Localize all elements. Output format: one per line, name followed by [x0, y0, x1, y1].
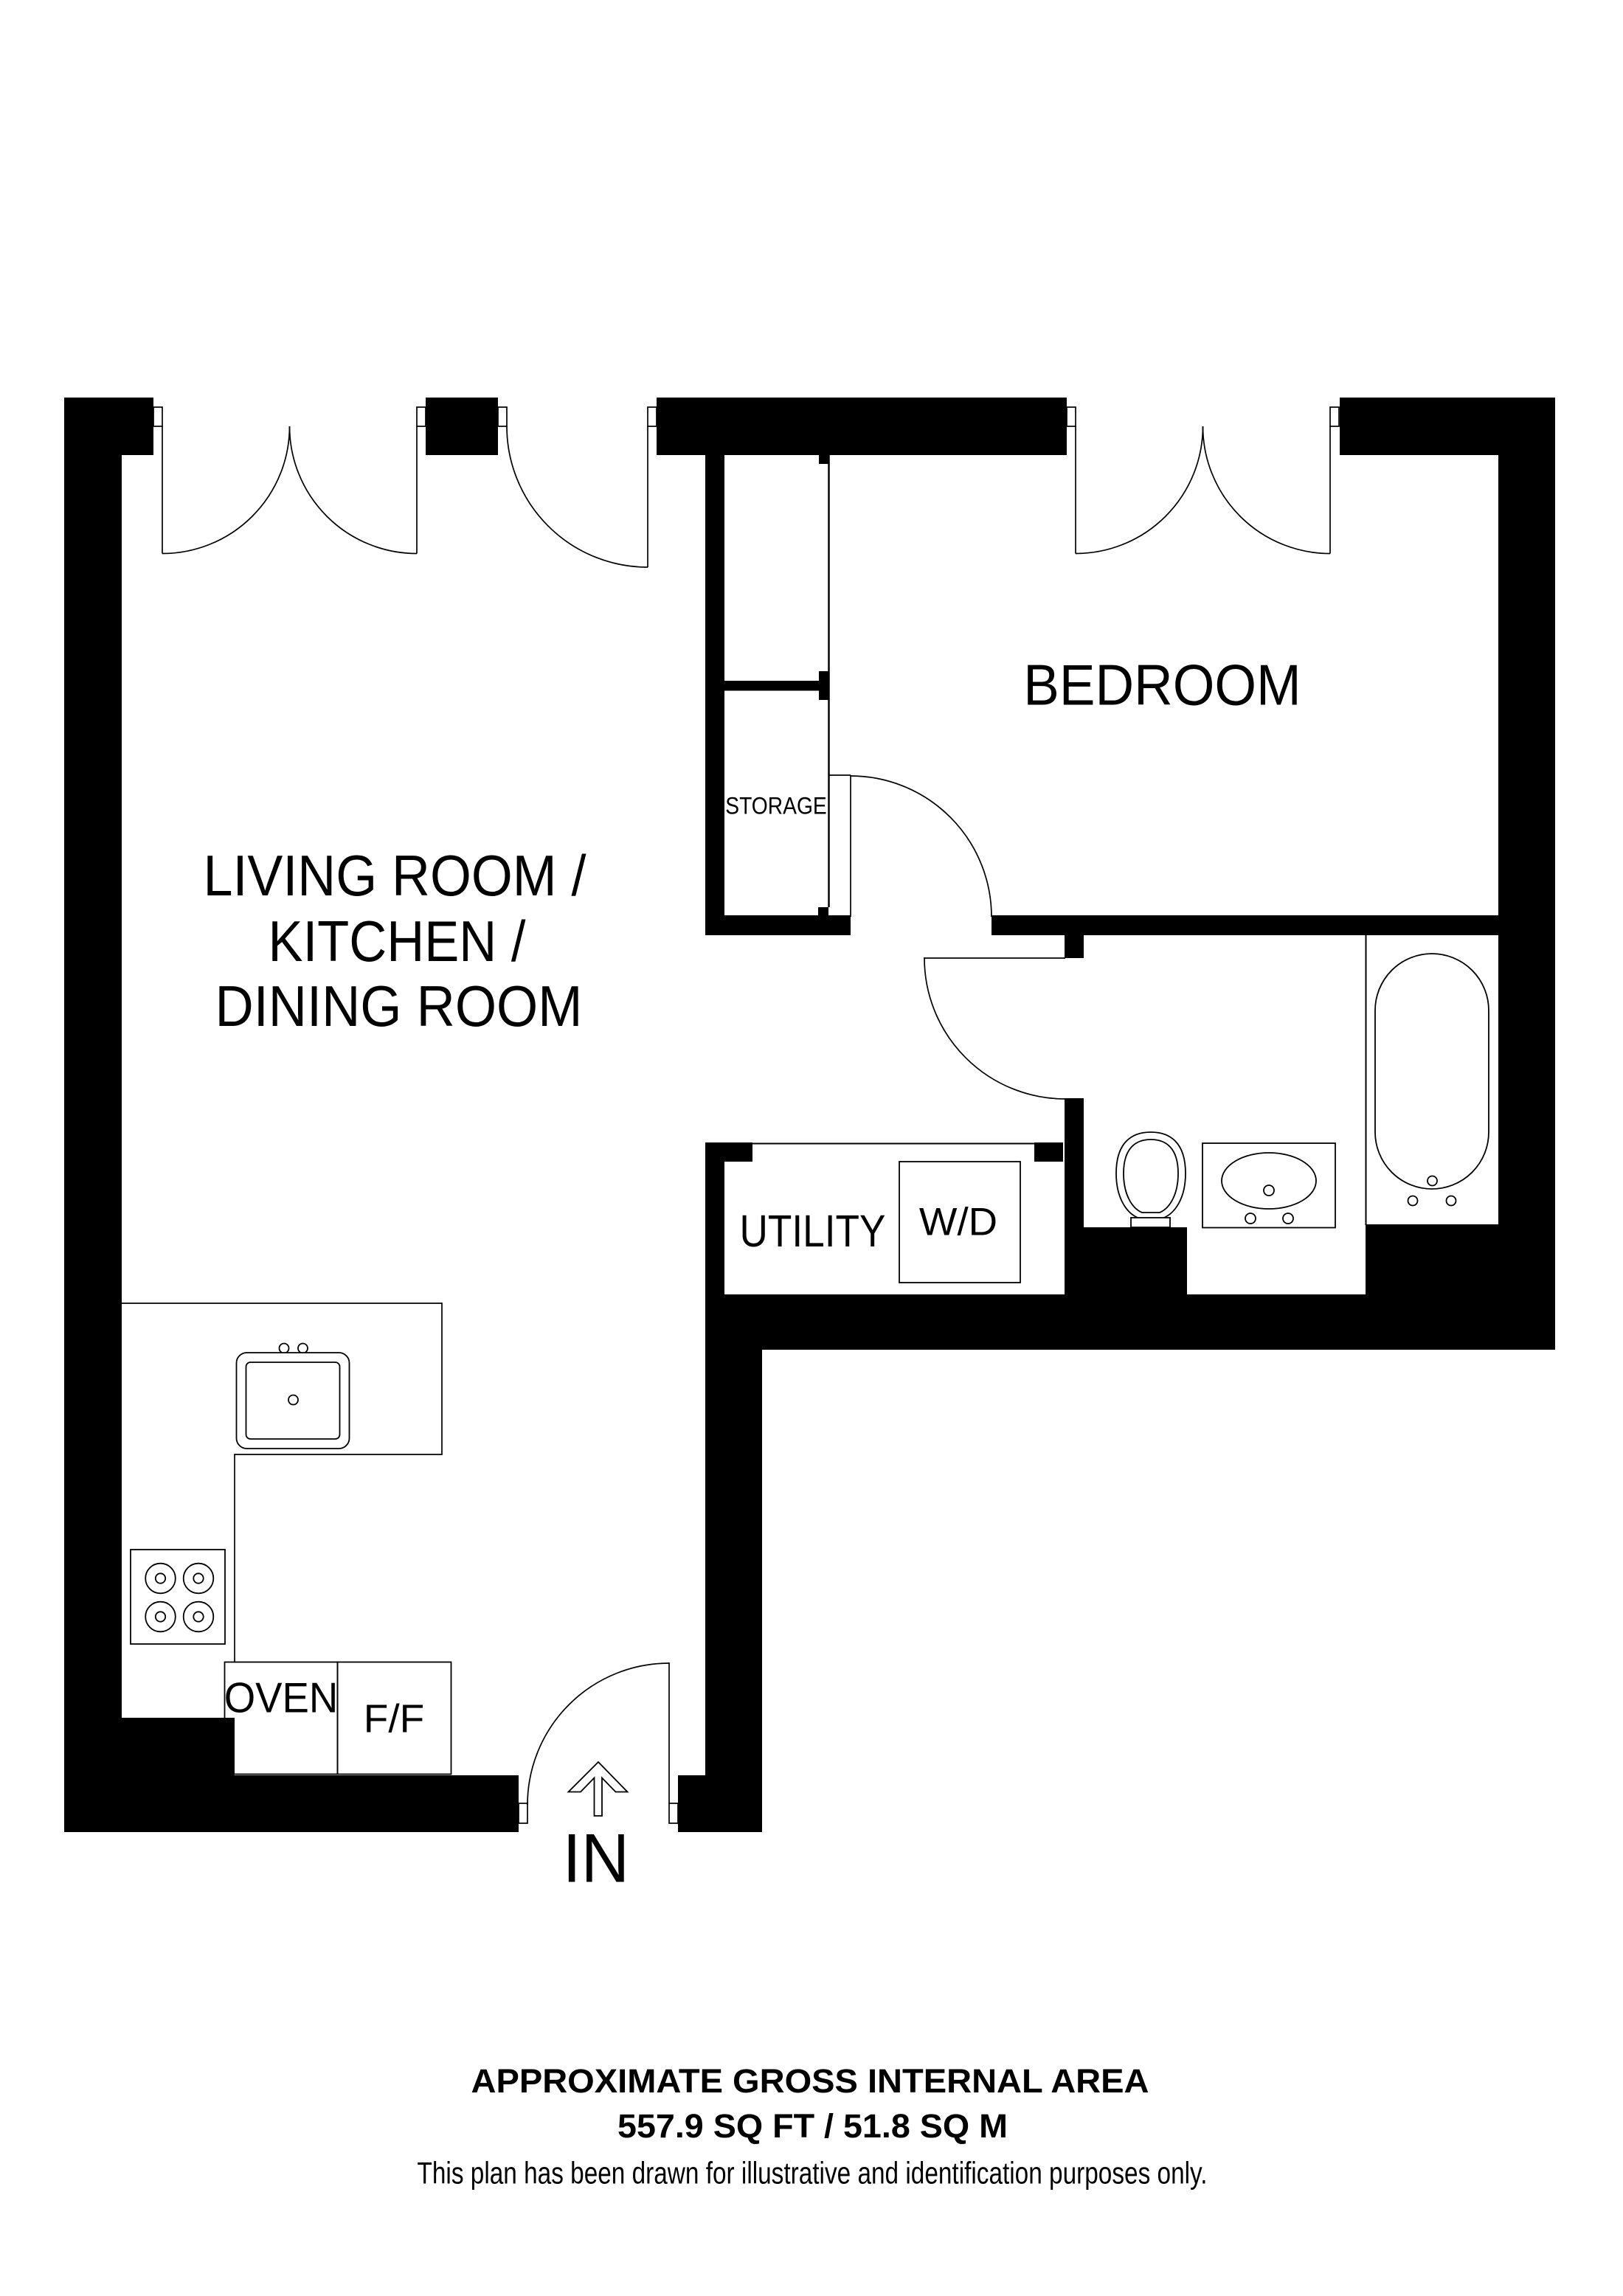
svg-text:KITCHEN /: KITCHEN /: [269, 910, 526, 974]
svg-text:W/D: W/D: [919, 1200, 997, 1244]
svg-text:UTILITY: UTILITY: [740, 1206, 886, 1257]
svg-text:APPROXIMATE GROSS INTERNAL ARE: APPROXIMATE GROSS INTERNAL AREA: [471, 2062, 1149, 2100]
svg-text:LIVING ROOM /: LIVING ROOM /: [204, 844, 586, 908]
svg-text:557.9 SQ FT / 51.8 SQ M: 557.9 SQ FT / 51.8 SQ M: [617, 2107, 1008, 2145]
svg-text:DINING ROOM: DINING ROOM: [215, 975, 583, 1038]
svg-text:BEDROOM: BEDROOM: [1023, 652, 1301, 717]
svg-text:STORAGE: STORAGE: [725, 793, 827, 819]
svg-text:F/F: F/F: [364, 1697, 424, 1741]
svg-text:IN: IN: [562, 1819, 629, 1896]
svg-text:OVEN: OVEN: [224, 1675, 339, 1722]
svg-text:This plan has been drawn for i: This plan has been drawn for illustrativ…: [418, 2156, 1208, 2191]
